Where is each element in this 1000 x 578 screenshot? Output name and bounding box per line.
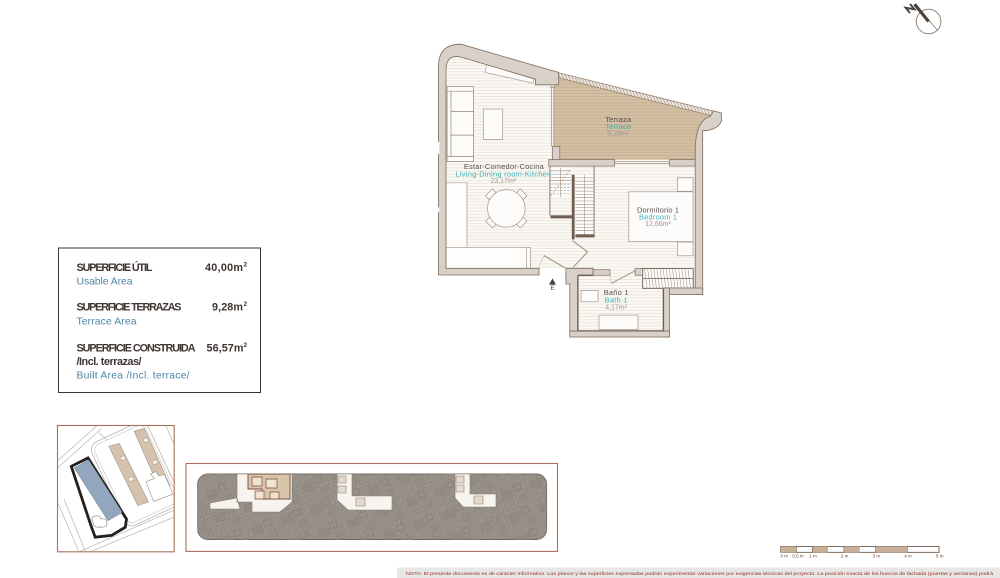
svg-text:Bath 1: Bath 1 <box>605 295 628 304</box>
svg-text:SUPERFICIE TERRAZAS: SUPERFICIE TERRAZAS <box>77 302 182 314</box>
svg-text:40,00m: 40,00m <box>205 262 243 274</box>
svg-text:0,5 m: 0,5 m <box>792 554 804 559</box>
svg-text:2: 2 <box>244 301 248 308</box>
svg-text:4,17m²: 4,17m² <box>605 305 627 312</box>
svg-text:0 m: 0 m <box>781 554 789 559</box>
svg-text:NOTA: El presente documento es: NOTA: El presente documento es de caráct… <box>406 571 994 576</box>
svg-text:9,28m²: 9,28m² <box>607 131 629 138</box>
svg-text:2 m: 2 m <box>841 554 849 559</box>
svg-text:4 m: 4 m <box>904 554 912 559</box>
svg-text:E: E <box>550 286 554 292</box>
svg-text:Terrace Area: Terrace Area <box>77 317 137 328</box>
svg-text:3 m: 3 m <box>873 554 881 559</box>
svg-text:Usable Area: Usable Area <box>77 277 133 288</box>
svg-text:12,66m²: 12,66m² <box>645 221 671 228</box>
svg-text:Built Area /Incl. terrace/: Built Area /Incl. terrace/ <box>77 371 190 382</box>
svg-text:9,28m: 9,28m <box>212 302 243 314</box>
svg-text:/Incl. terrazas/: /Incl. terrazas/ <box>77 356 142 368</box>
svg-text:1 m: 1 m <box>809 554 817 559</box>
svg-text:2: 2 <box>244 342 248 349</box>
svg-text:23,17m²: 23,17m² <box>490 178 516 185</box>
svg-text:5 m: 5 m <box>936 554 944 559</box>
svg-text:SUPERFICIE ÚTIL: SUPERFICIE ÚTIL <box>77 261 153 274</box>
svg-text:56,57m: 56,57m <box>207 343 244 355</box>
svg-text:2: 2 <box>244 262 248 269</box>
svg-text:SUPERFICIE CONSTRUIDA: SUPERFICIE CONSTRUIDA <box>77 343 196 355</box>
